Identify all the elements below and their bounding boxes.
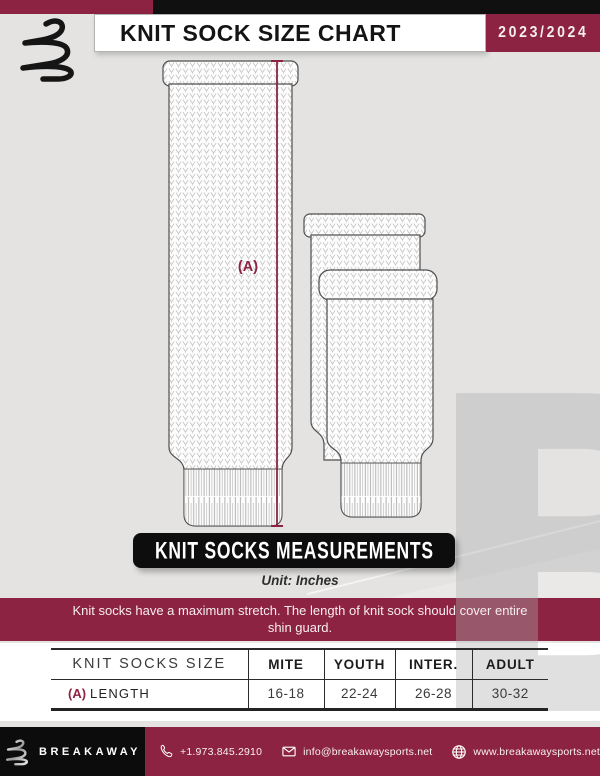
measurements-banner: KNIT SOCKS MEASUREMENTS [133,533,455,568]
website-contact: www.breakawaysports.net [451,744,600,760]
dimension-key: (A) [68,686,86,701]
size-table: KNIT SOCKS SIZE MITE YOUTH INTER. ADULT … [51,648,548,711]
dimension-name: LENGTH [90,686,150,701]
page-title: KNIT SOCK SIZE CHART [120,20,401,47]
column-header-youth: YOUTH [324,649,395,679]
brand-name: BREAKAWAY [39,746,141,758]
top-accent-strip [0,0,600,14]
phone-number: +1.973.845.2910 [180,746,262,758]
measurements-banner-title: KNIT SOCKS MEASUREMENTS [155,536,434,565]
size-table-header-row: KNIT SOCKS SIZE MITE YOUTH INTER. ADULT [51,649,548,679]
breakaway-logo-small-icon [4,738,30,766]
stretch-notice-band: Knit socks have a maximum stretch. The l… [0,598,600,641]
footer-contacts: +1.973.845.2910 info@breakawaysports.net… [145,727,600,776]
title-bar: KNIT SOCK SIZE CHART [94,14,486,52]
row-label-length: (A)LENGTH [51,679,248,709]
phone-contact: +1.973.845.2910 [159,744,262,759]
table-row-length: (A)LENGTH 16-18 22-24 26-28 30-32 [51,679,548,709]
length-value-adult: 30-32 [472,679,548,709]
knit-sock-diagram: (A) [140,48,460,540]
length-value-mite: 16-18 [248,679,324,709]
length-value-youth: 22-24 [324,679,395,709]
size-table-title: KNIT SOCKS SIZE [51,649,248,679]
globe-icon [451,744,467,760]
email-address: info@breakawaysports.net [303,746,432,758]
footer-brand-block: BREAKAWAY [0,727,145,776]
unit-note: Unit: Inches [0,573,600,588]
stretch-notice-text: Knit socks have a maximum stretch. The l… [69,598,531,636]
dimension-a-label: (A) [238,259,258,275]
breakaway-logo-icon [12,15,82,83]
sock-intermediate [319,270,437,517]
season-label: 2023/2024 [498,24,588,42]
length-value-inter: 26-28 [395,679,472,709]
column-header-inter: INTER. [395,649,472,679]
column-header-mite: MITE [248,649,324,679]
size-chart-poster: KNIT SOCK SIZE CHART 2023/2024 B [0,0,600,776]
column-header-adult: ADULT [472,649,548,679]
phone-icon [159,744,174,759]
email-icon [281,744,297,759]
season-badge: 2023/2024 [486,14,600,52]
footer: BREAKAWAY +1.973.845.2910 info@breakaway… [0,727,600,776]
email-contact: info@breakawaysports.net [281,744,432,759]
website-url: www.breakawaysports.net [473,746,600,758]
top-accent-strip-maroon [0,0,153,14]
